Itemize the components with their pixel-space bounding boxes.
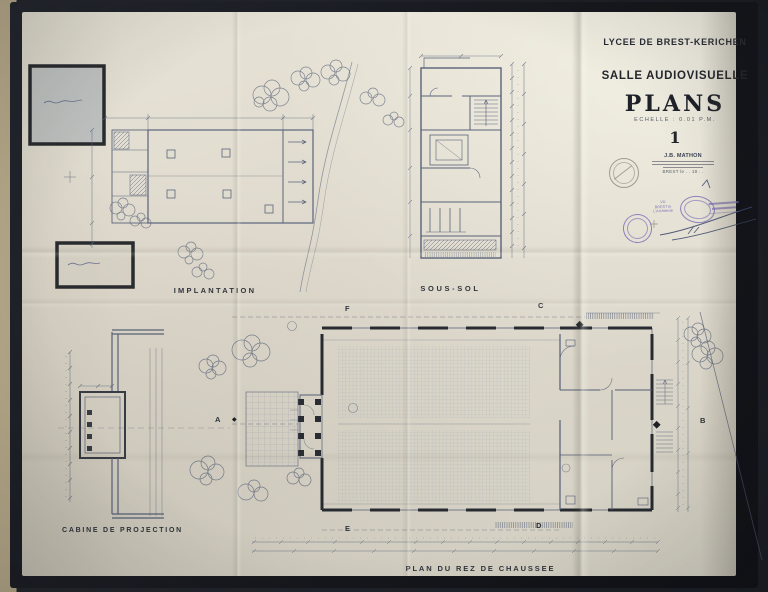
caption-sous-sol: SOUS-SOL [403, 284, 498, 293]
title-room: SALLE AUDIOVISUELLE [600, 70, 750, 82]
section-marker-c: C [538, 301, 543, 310]
text-stamp [709, 200, 742, 216]
section-marker-d: D [536, 521, 541, 530]
axis-diamond-a: ◆ [232, 416, 237, 423]
architect-detail-rule [652, 164, 714, 165]
embossed-seal [609, 158, 639, 188]
section-marker-b: B [700, 416, 705, 425]
photo-background: LYCEE DE BREST-KERICHEN SALLE AUDIOVISUE… [0, 0, 768, 592]
section-marker-e: E [345, 524, 350, 533]
architect-name: J.B. MATHON [648, 153, 718, 159]
caption-implantation: IMPLANTATION [150, 286, 280, 295]
cabine-drawing [58, 330, 230, 518]
caption-rez-de-chaussee: PLAN DU REZ DE CHAUSSEE [378, 564, 583, 573]
plan-linework [0, 0, 768, 592]
architect-detail-rule [652, 161, 714, 162]
title-scale: ECHELLE : 0.01 P.M. [600, 117, 750, 123]
sheet-number: 1 [600, 128, 750, 147]
section-marker-a: A [215, 415, 220, 424]
title-school: LYCEE DE BREST-KERICHEN [600, 37, 750, 47]
architect-date-line: BREST le . . 19 . . [648, 169, 718, 174]
implantation-drawing [30, 60, 404, 292]
caption-cabine: CABINE DE PROJECTION [45, 527, 200, 534]
architect-detail-rule [663, 167, 703, 168]
title-plans: PLANS [600, 91, 750, 117]
section-marker-f: F [345, 304, 350, 313]
sous-sol-drawing [408, 54, 526, 258]
vu-stamp: VU BREST le L'Architecte [646, 199, 680, 214]
rez-de-chaussee-drawing [190, 312, 762, 560]
